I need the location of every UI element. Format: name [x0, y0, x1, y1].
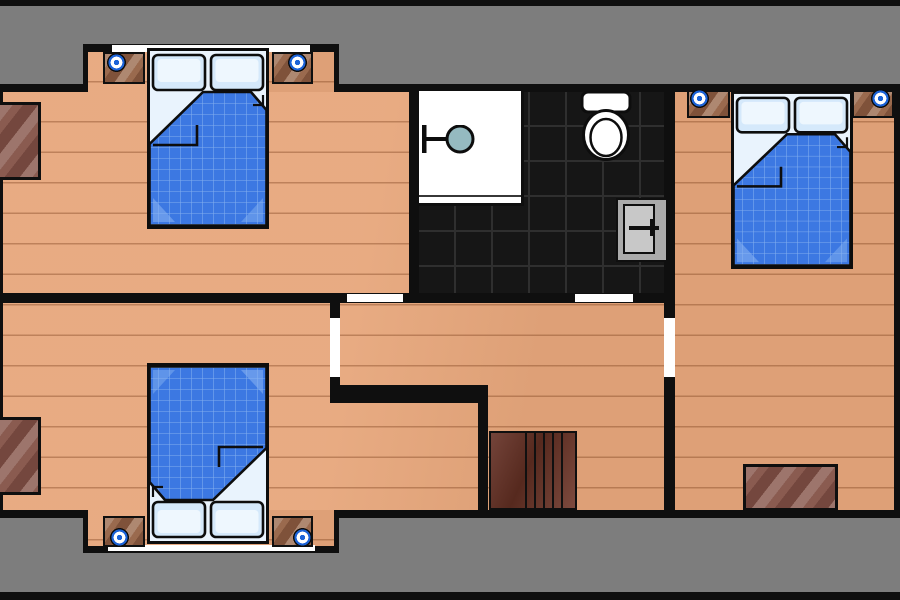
shower-head [447, 126, 473, 152]
doorway-top-bedroom [347, 294, 403, 302]
pillow-left-highlight [216, 510, 259, 533]
staircase [489, 431, 577, 510]
lamp-right-b [871, 89, 890, 108]
wall-middle-horizontal [0, 293, 675, 303]
toilet-icon [580, 90, 634, 162]
shower-stall [419, 91, 524, 206]
wall-hallway-right [664, 92, 675, 518]
pillow-left-highlight [158, 59, 201, 82]
floor-plan-canvas [0, 0, 900, 600]
bed-group [733, 92, 852, 267]
double-bed-top-left [147, 48, 269, 229]
double-bed-right [731, 91, 853, 269]
lamp-right-a [690, 89, 709, 108]
rug-bottom-left [0, 417, 41, 495]
bed-group [149, 50, 268, 228]
wall-bottom-protrusion-right [334, 518, 339, 552]
lamp-bottom-left-b [293, 528, 312, 547]
doorway-bottom-bedroom [330, 318, 340, 377]
doorway-bathroom [575, 294, 633, 302]
double-bed-bottom-left [147, 363, 269, 544]
bathroom-door [616, 198, 668, 262]
pillow-left-highlight [742, 102, 785, 125]
door-handle-bar [629, 226, 659, 230]
doorway-right-bedroom [664, 318, 675, 377]
image-bottom-border [0, 592, 900, 600]
pillow-right-highlight [216, 59, 259, 82]
wall-stairwell [478, 403, 488, 518]
wall-bottom-left [0, 510, 88, 518]
wall-top-left [0, 84, 88, 92]
rug-top-left [0, 102, 41, 180]
wall-right-edge [894, 84, 900, 518]
lamp-top-left-a [107, 53, 126, 72]
bed-group [149, 365, 268, 543]
wall-bottom-main [334, 510, 900, 518]
pillow-right-highlight [158, 510, 201, 533]
door-handle-post [650, 219, 655, 236]
wall-hallway-bottom [330, 385, 488, 403]
lamp-top-left-b [288, 53, 307, 72]
image-top-border [0, 0, 900, 6]
wall-bathroom-left [409, 92, 419, 303]
shower-head-icon [420, 125, 478, 155]
pillow-right-highlight [800, 102, 843, 125]
rug-right-bedroom [743, 464, 838, 511]
lamp-bottom-left-a [110, 528, 129, 547]
